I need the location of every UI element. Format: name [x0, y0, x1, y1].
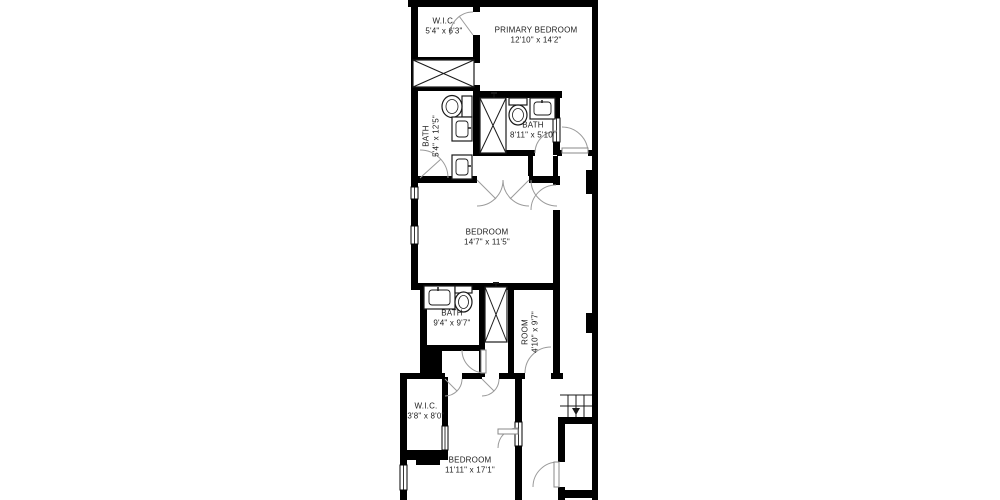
- toilet-icon: [509, 98, 527, 125]
- shower-icon: [485, 283, 507, 342]
- sink-icon: [530, 98, 555, 119]
- stairs-down: [560, 395, 592, 417]
- floorplan-page: W.I.C. 5'4" x 6'3" PRIMARY BEDROOM 12'10…: [0, 0, 1000, 500]
- door-arc-icon: [450, 12, 473, 35]
- sink-icon: [452, 155, 472, 179]
- floorplan-drawing: [0, 0, 1000, 500]
- toilet-icon: [442, 96, 472, 118]
- linen-closet-icon: [413, 60, 474, 87]
- toilet-icon: [455, 286, 472, 312]
- door-arc-icon: [531, 185, 556, 210]
- door-arc-icon: [525, 347, 551, 373]
- sink-icon: [452, 117, 472, 141]
- shower-icon: [480, 93, 506, 153]
- sink-icon: [424, 286, 455, 309]
- stairs-down-arrow-icon: [572, 408, 580, 415]
